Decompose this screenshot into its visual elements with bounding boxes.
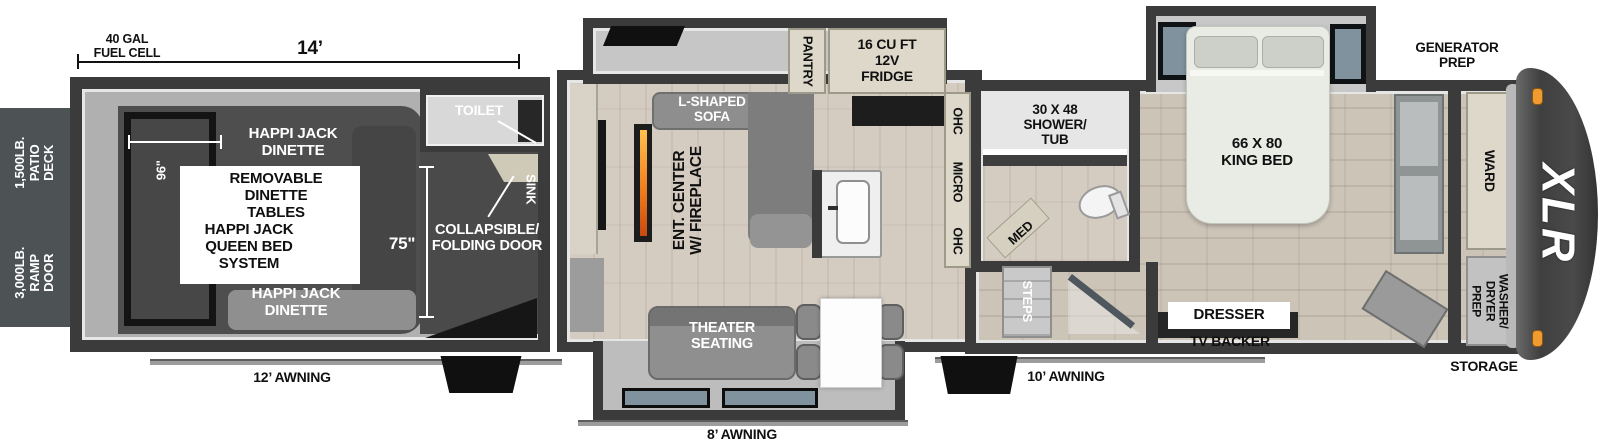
toilet-label: TOILET xyxy=(440,103,518,119)
floorplan: 1,500LB. PATIO DECK 3,000LB. RAMP DOOR 4… xyxy=(0,0,1600,447)
l-sofa-seat xyxy=(750,214,812,248)
pantry-label: PANTRY xyxy=(800,36,815,87)
skylight xyxy=(603,26,685,46)
storage-label: STORAGE xyxy=(1428,359,1540,375)
garage-opening-dimension-line xyxy=(128,141,222,143)
left-cabinet xyxy=(570,84,598,254)
sink-label: SINK xyxy=(523,174,538,204)
rear-step xyxy=(437,356,525,393)
patio-deck-label: 1,500LB. PATIO DECK xyxy=(13,128,57,198)
slide-window-left xyxy=(622,388,710,408)
stove-counter xyxy=(852,96,944,126)
dresser-label: DRESSER xyxy=(1168,302,1290,329)
bed-fold xyxy=(1190,70,1324,76)
marker-light-bottom xyxy=(1532,330,1543,347)
front-interior-wall xyxy=(1448,80,1461,354)
bedroom-window-right xyxy=(1330,24,1366,84)
ohc-bottom-label: OHC xyxy=(951,227,965,254)
fridge: 16 CU FT 12V FRIDGE xyxy=(828,28,946,94)
folding-door-label: COLLAPSIBLE/ FOLDING DOOR xyxy=(428,222,546,254)
dinette-tables-label: REMOVABLE DINETTE TABLES xyxy=(196,171,356,221)
garage-length-label: 14’ xyxy=(285,38,335,59)
tv-panel xyxy=(598,120,606,230)
dinette-chair xyxy=(796,304,822,340)
rear-awning-label: 12’ AWNING xyxy=(246,370,338,386)
dinette-table xyxy=(820,298,882,388)
garage-door-height-label: 75" xyxy=(380,234,424,253)
l-sofa-label: L-SHAPED SOFA xyxy=(652,94,772,124)
micro-label: MICRO xyxy=(951,162,965,203)
entry-step-box xyxy=(938,356,1020,394)
ramp-door-label: 3,000LB. RAMP DOOR xyxy=(13,237,57,307)
sink-faucet xyxy=(828,206,838,210)
fuel-cell-label: 40 GAL FUEL CELL xyxy=(87,32,167,60)
bed-pillow xyxy=(1194,36,1258,68)
garage-opening-label: 96" xyxy=(155,160,170,180)
dinette-top-label: HAPPI JACK DINETTE xyxy=(232,126,354,160)
fridge-label: 16 CU FT 12V FRIDGE xyxy=(857,37,916,84)
shower-rim xyxy=(983,155,1127,166)
corridor-wall xyxy=(1146,262,1158,354)
slide-window-right xyxy=(722,388,818,408)
ohc-top-label: OHC xyxy=(951,107,965,134)
mid-awning-label: 8’ AWNING xyxy=(692,427,792,443)
marker-light-top xyxy=(1532,88,1543,105)
nose-cap: XLR xyxy=(1516,68,1598,360)
lower-left-cabinet xyxy=(570,258,604,332)
tv-backer-label: TV BACKER xyxy=(1172,334,1288,350)
theater-label: THEATER SEATING xyxy=(652,320,792,352)
bed-pillow xyxy=(1262,36,1324,68)
shower-label: 30 X 48 SHOWER/ TUB xyxy=(995,102,1115,147)
wardrobe-panel xyxy=(1400,102,1438,166)
ward-label: WARD xyxy=(1481,150,1497,192)
washer-dryer-label: WASHER/ DRYER PREP xyxy=(1469,274,1509,329)
dinette-bottom-label: HAPPI JACK DINETTE xyxy=(235,286,357,320)
steps-label: STEPS xyxy=(1020,280,1035,322)
kitchen-sink xyxy=(836,180,870,244)
xlr-logo: XLR xyxy=(1531,163,1583,264)
garage-length-dimension-line xyxy=(77,61,520,63)
king-bed-label: 66 X 80 KING BED xyxy=(1196,136,1318,170)
wardrobe-panel xyxy=(1400,176,1438,240)
front-awning-label: 10’ AWNING xyxy=(1018,369,1114,385)
queen-bed-label: HAPPI JACK QUEEN BED SYSTEM xyxy=(184,222,314,272)
generator-prep-label: GENERATOR PREP xyxy=(1398,40,1516,70)
dinette-chair xyxy=(796,344,822,380)
island-base xyxy=(812,170,822,258)
ent-center-label: ENT. CENTER W/ FIREPLACE xyxy=(671,146,706,255)
